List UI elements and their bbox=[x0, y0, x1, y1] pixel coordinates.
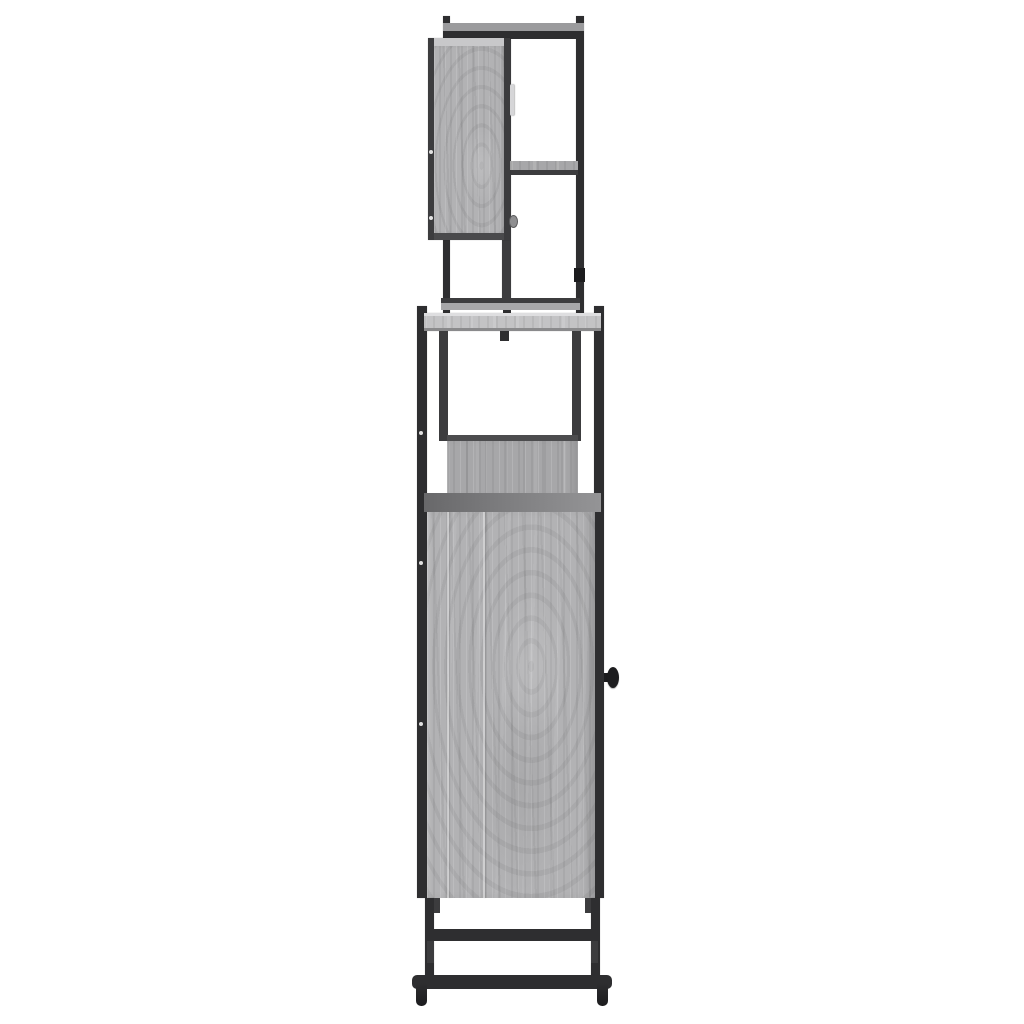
cabinet-plank-seam-2 bbox=[483, 512, 485, 898]
mirror-door bbox=[428, 38, 510, 240]
cabinet-door-panel bbox=[427, 512, 595, 898]
foot-left bbox=[416, 983, 427, 1006]
base-shelfbox bbox=[447, 441, 578, 496]
mirror-shelf-board bbox=[510, 161, 578, 170]
mirror-post-bracket bbox=[574, 268, 585, 282]
mirror-door-screw-top bbox=[429, 150, 433, 154]
base-frame-screw-2 bbox=[419, 561, 423, 565]
base-inner-post-right bbox=[572, 331, 581, 441]
base-middle-stub bbox=[500, 331, 509, 341]
stretcher-stub-left bbox=[427, 941, 434, 963]
lower-stretcher bbox=[412, 975, 612, 989]
base-frame-screw-3 bbox=[419, 722, 423, 726]
mirror-shelf-rail bbox=[510, 170, 578, 175]
stretcher-stub-right bbox=[591, 941, 598, 963]
base-frame-post-left bbox=[417, 306, 427, 898]
rear-leg-stub-right bbox=[585, 898, 591, 913]
upper-stretcher bbox=[425, 929, 600, 941]
cabinet-plank-seam-1 bbox=[447, 512, 449, 898]
cabinet-top-edge bbox=[424, 493, 601, 512]
mirror-door-knob bbox=[509, 215, 518, 228]
mirror-bottom-board bbox=[441, 303, 580, 310]
mirror-top-rail-board bbox=[443, 23, 584, 31]
base-frame-post-right bbox=[594, 306, 604, 898]
mirror-door-face bbox=[434, 46, 504, 233]
cabinet-knob bbox=[607, 667, 619, 688]
base-top-board bbox=[424, 313, 601, 331]
rear-leg-stub-left bbox=[434, 898, 440, 913]
product-photo-stage bbox=[0, 0, 1024, 1024]
base-inner-post-left bbox=[439, 331, 448, 441]
mirror-door-top-strip bbox=[434, 38, 504, 46]
base-frame-screw-1 bbox=[419, 431, 423, 435]
mirror-door-handle-bar bbox=[510, 84, 514, 116]
foot-right bbox=[597, 983, 608, 1006]
mirror-door-screw-bottom bbox=[429, 216, 433, 220]
mirror-door-bottom-strip bbox=[434, 233, 504, 240]
base-top-board-edge bbox=[424, 316, 601, 328]
mirror-door-edge-right bbox=[504, 38, 510, 240]
